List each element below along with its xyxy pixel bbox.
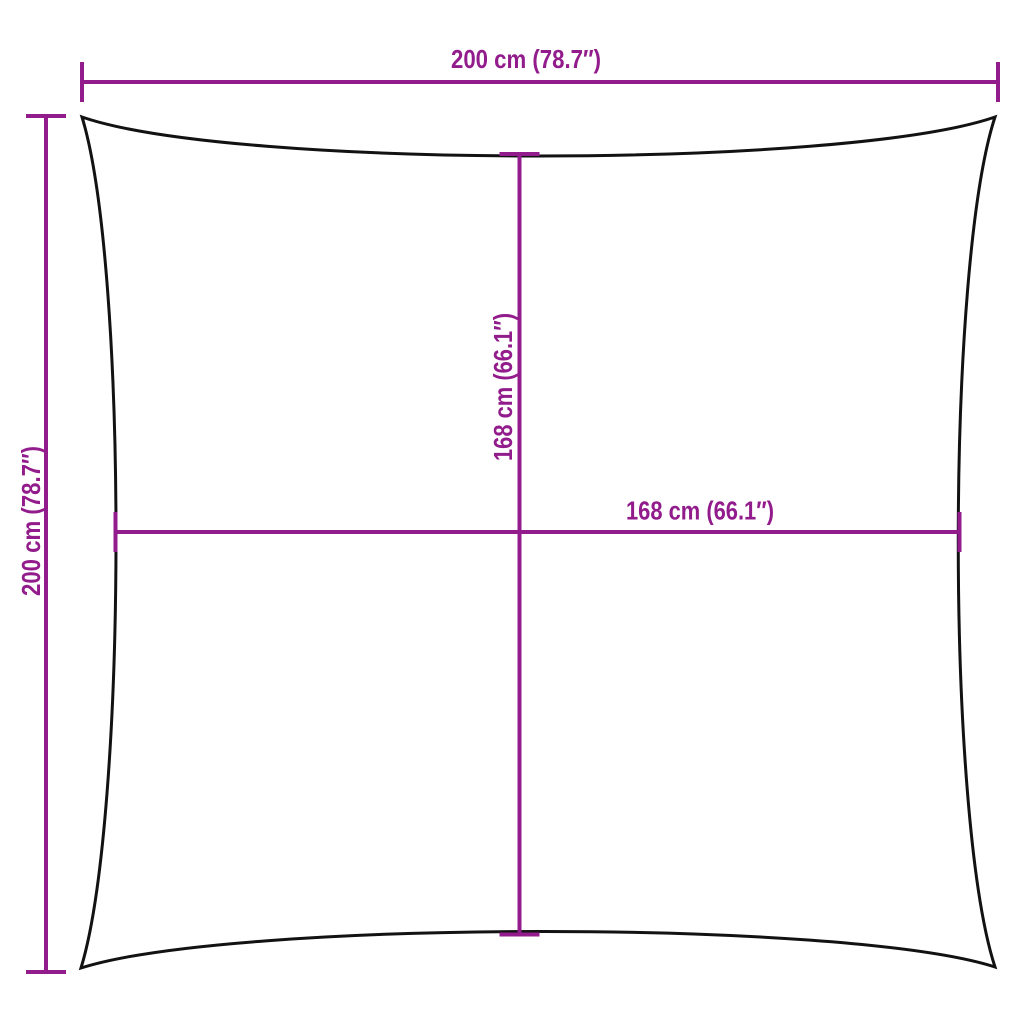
svg-text:168 cm (66.1″): 168 cm (66.1″): [488, 313, 518, 461]
svg-text:200 cm (78.7″): 200 cm (78.7″): [16, 446, 46, 596]
svg-text:168 cm (66.1″): 168 cm (66.1″): [626, 496, 774, 526]
svg-text:200 cm (78.7″): 200 cm (78.7″): [451, 44, 601, 74]
